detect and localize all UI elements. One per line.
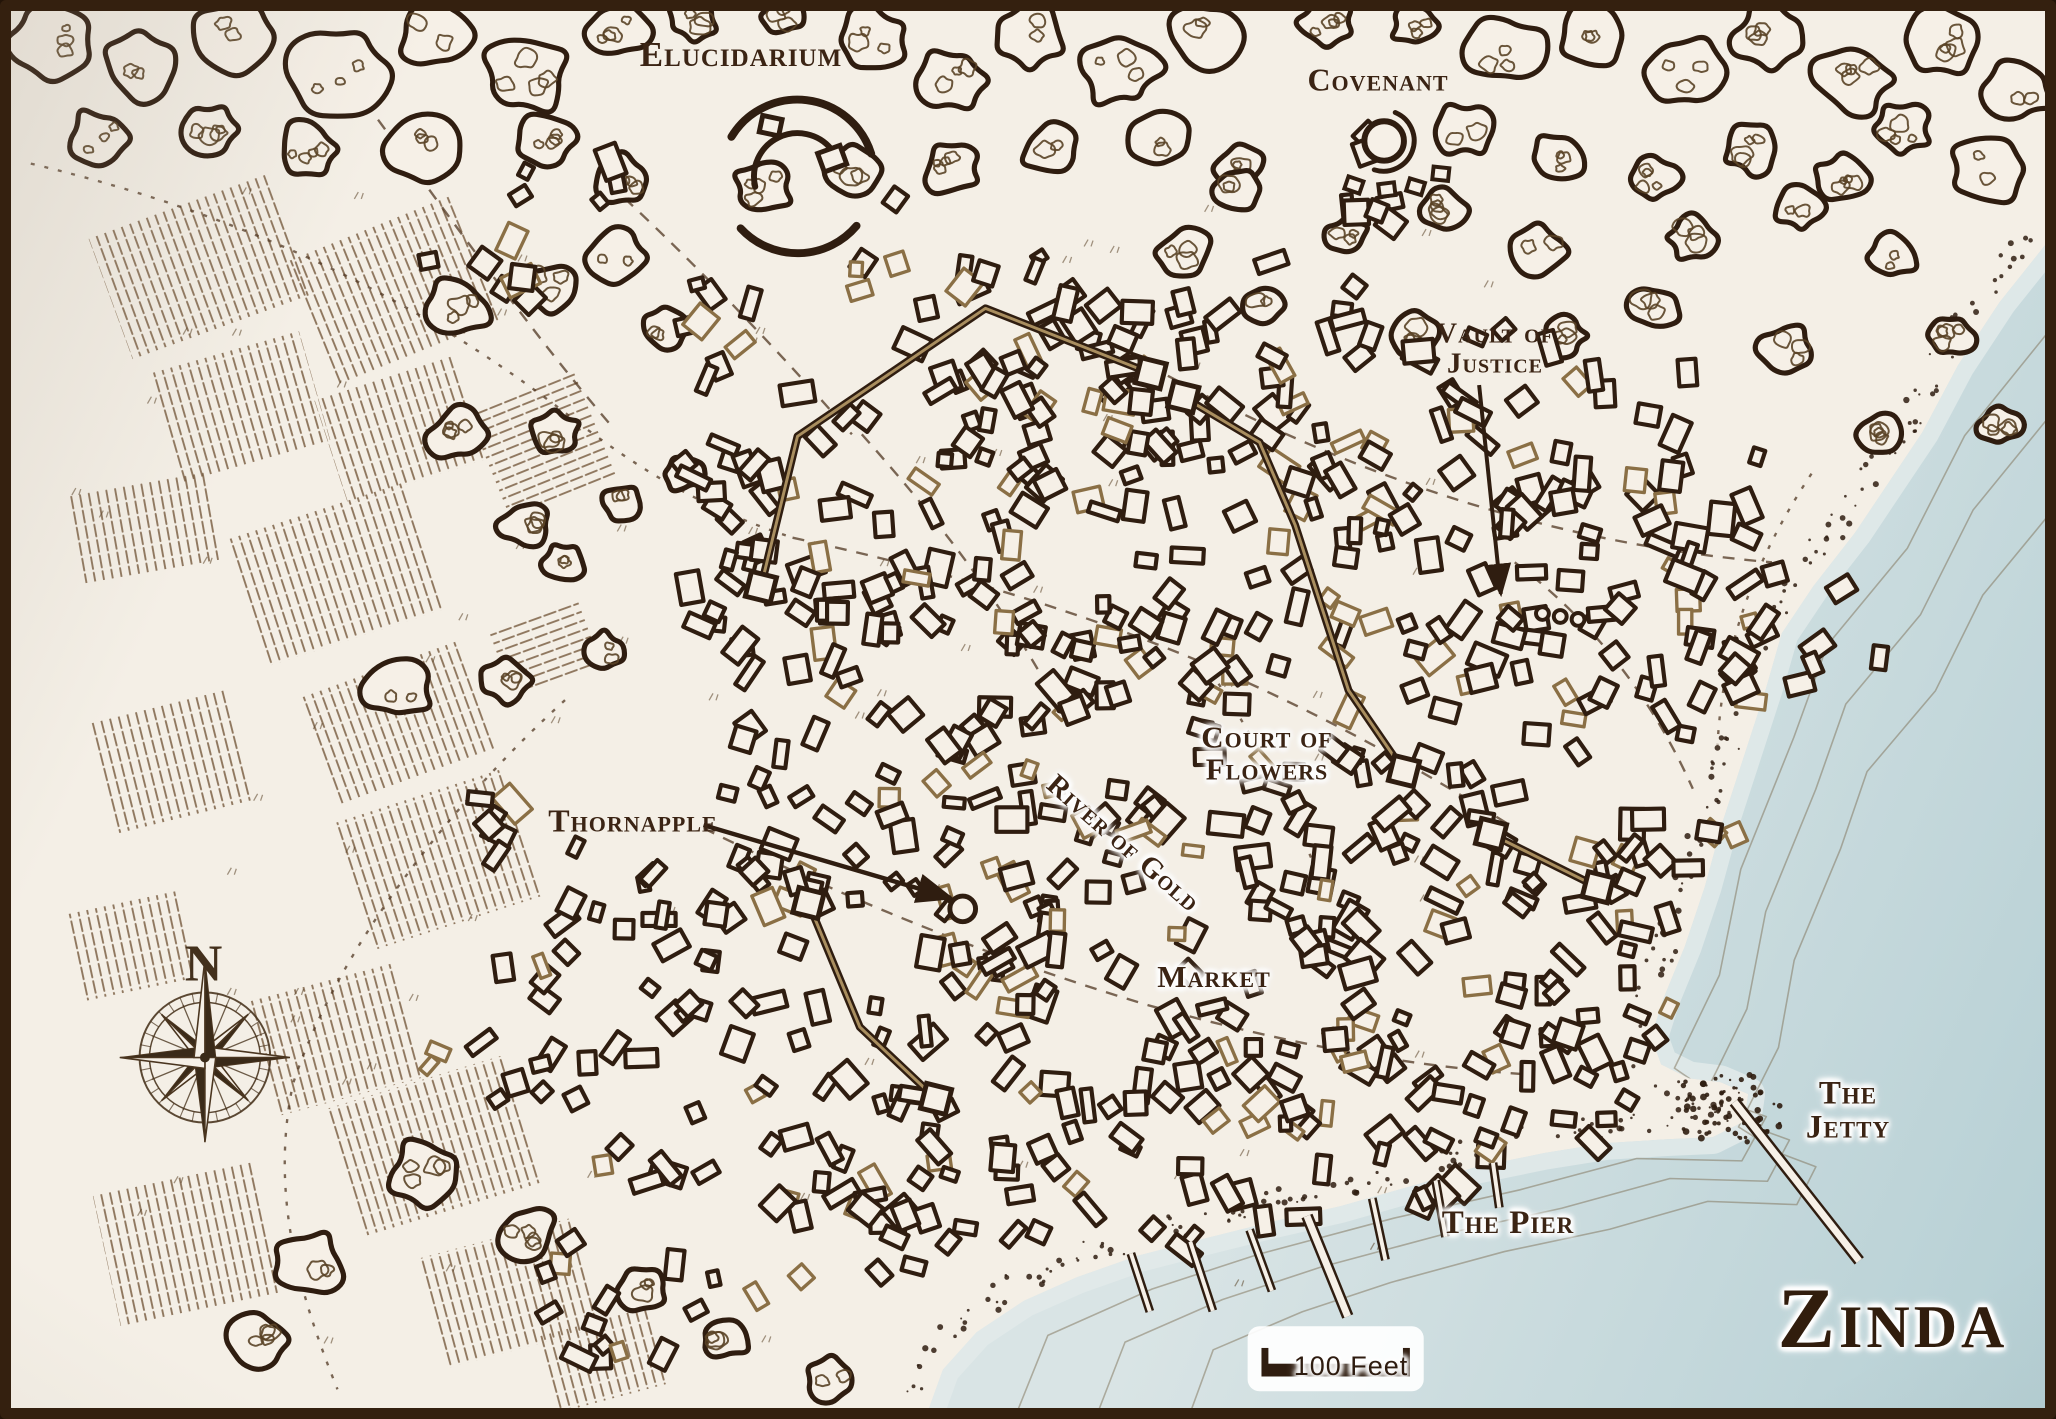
- map-canvas: [11, 11, 2045, 1408]
- fantasy-city-map: Elucidarium Covenant Vault of Justice Co…: [0, 0, 2056, 1419]
- scale-bar: [1248, 1326, 1424, 1391]
- farm-fields-layer: [62, 175, 672, 1408]
